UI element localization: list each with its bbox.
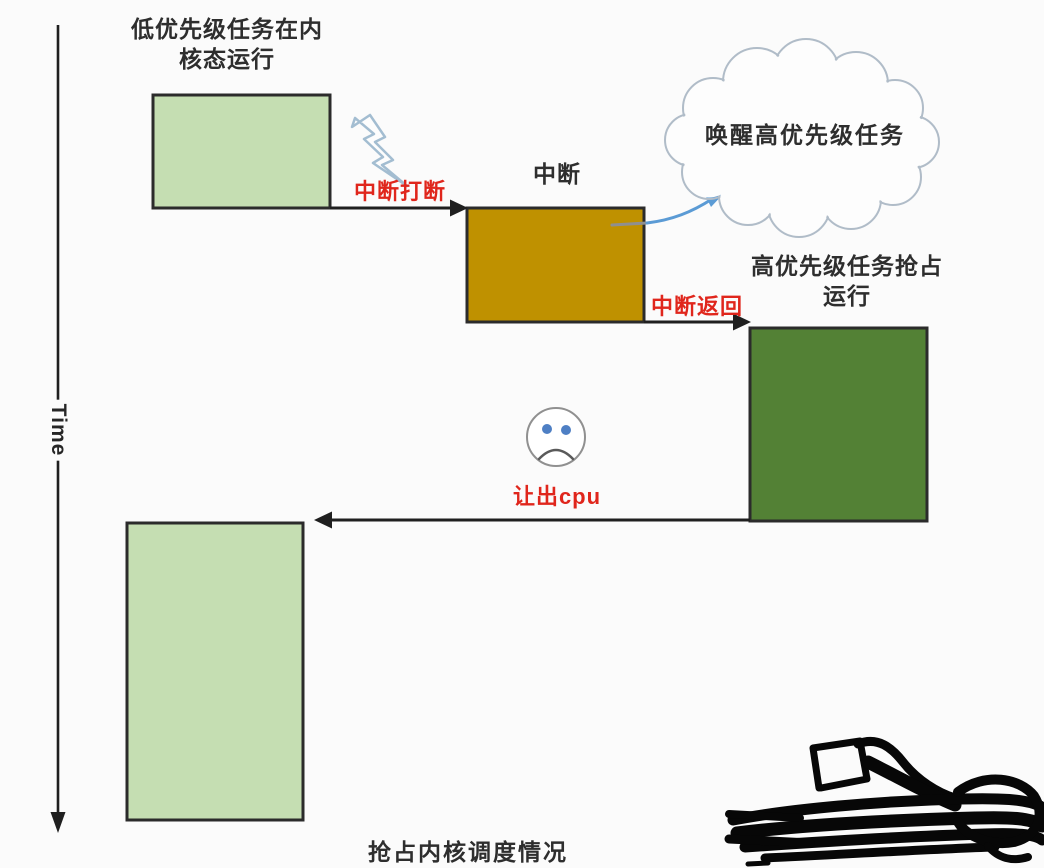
low-priority-task-box bbox=[153, 95, 330, 208]
high-priority-task-box bbox=[750, 328, 927, 521]
wake-cloud-label: 唤醒高优先级任务 bbox=[705, 120, 905, 150]
diagram-caption: 抢占内核调度情况 bbox=[368, 833, 568, 867]
yield-cpu-label: 让出cpu bbox=[513, 479, 601, 511]
interrupt-label: 中断 bbox=[533, 159, 581, 189]
scheduling-diagram: Time 低优先级任务在内 核态运行 中断 唤醒高优先级任务 高优先级任务抢占 … bbox=[0, 0, 1044, 868]
sad-face-icon bbox=[527, 408, 585, 466]
scribble-redaction bbox=[729, 741, 1042, 864]
time-axis-label: Time bbox=[46, 400, 70, 461]
high-priority-task-label: 高优先级任务抢占 运行 bbox=[751, 251, 943, 312]
low-priority-resume-box bbox=[127, 523, 303, 820]
time-axis-arrowhead bbox=[51, 812, 66, 833]
interrupt-return-label: 中断返回 bbox=[651, 289, 743, 321]
interrupt-break-label: 中断打断 bbox=[354, 174, 446, 206]
yield-cpu-arrow bbox=[314, 512, 750, 529]
low-priority-task-label: 低优先级任务在内 核态运行 bbox=[131, 14, 323, 75]
